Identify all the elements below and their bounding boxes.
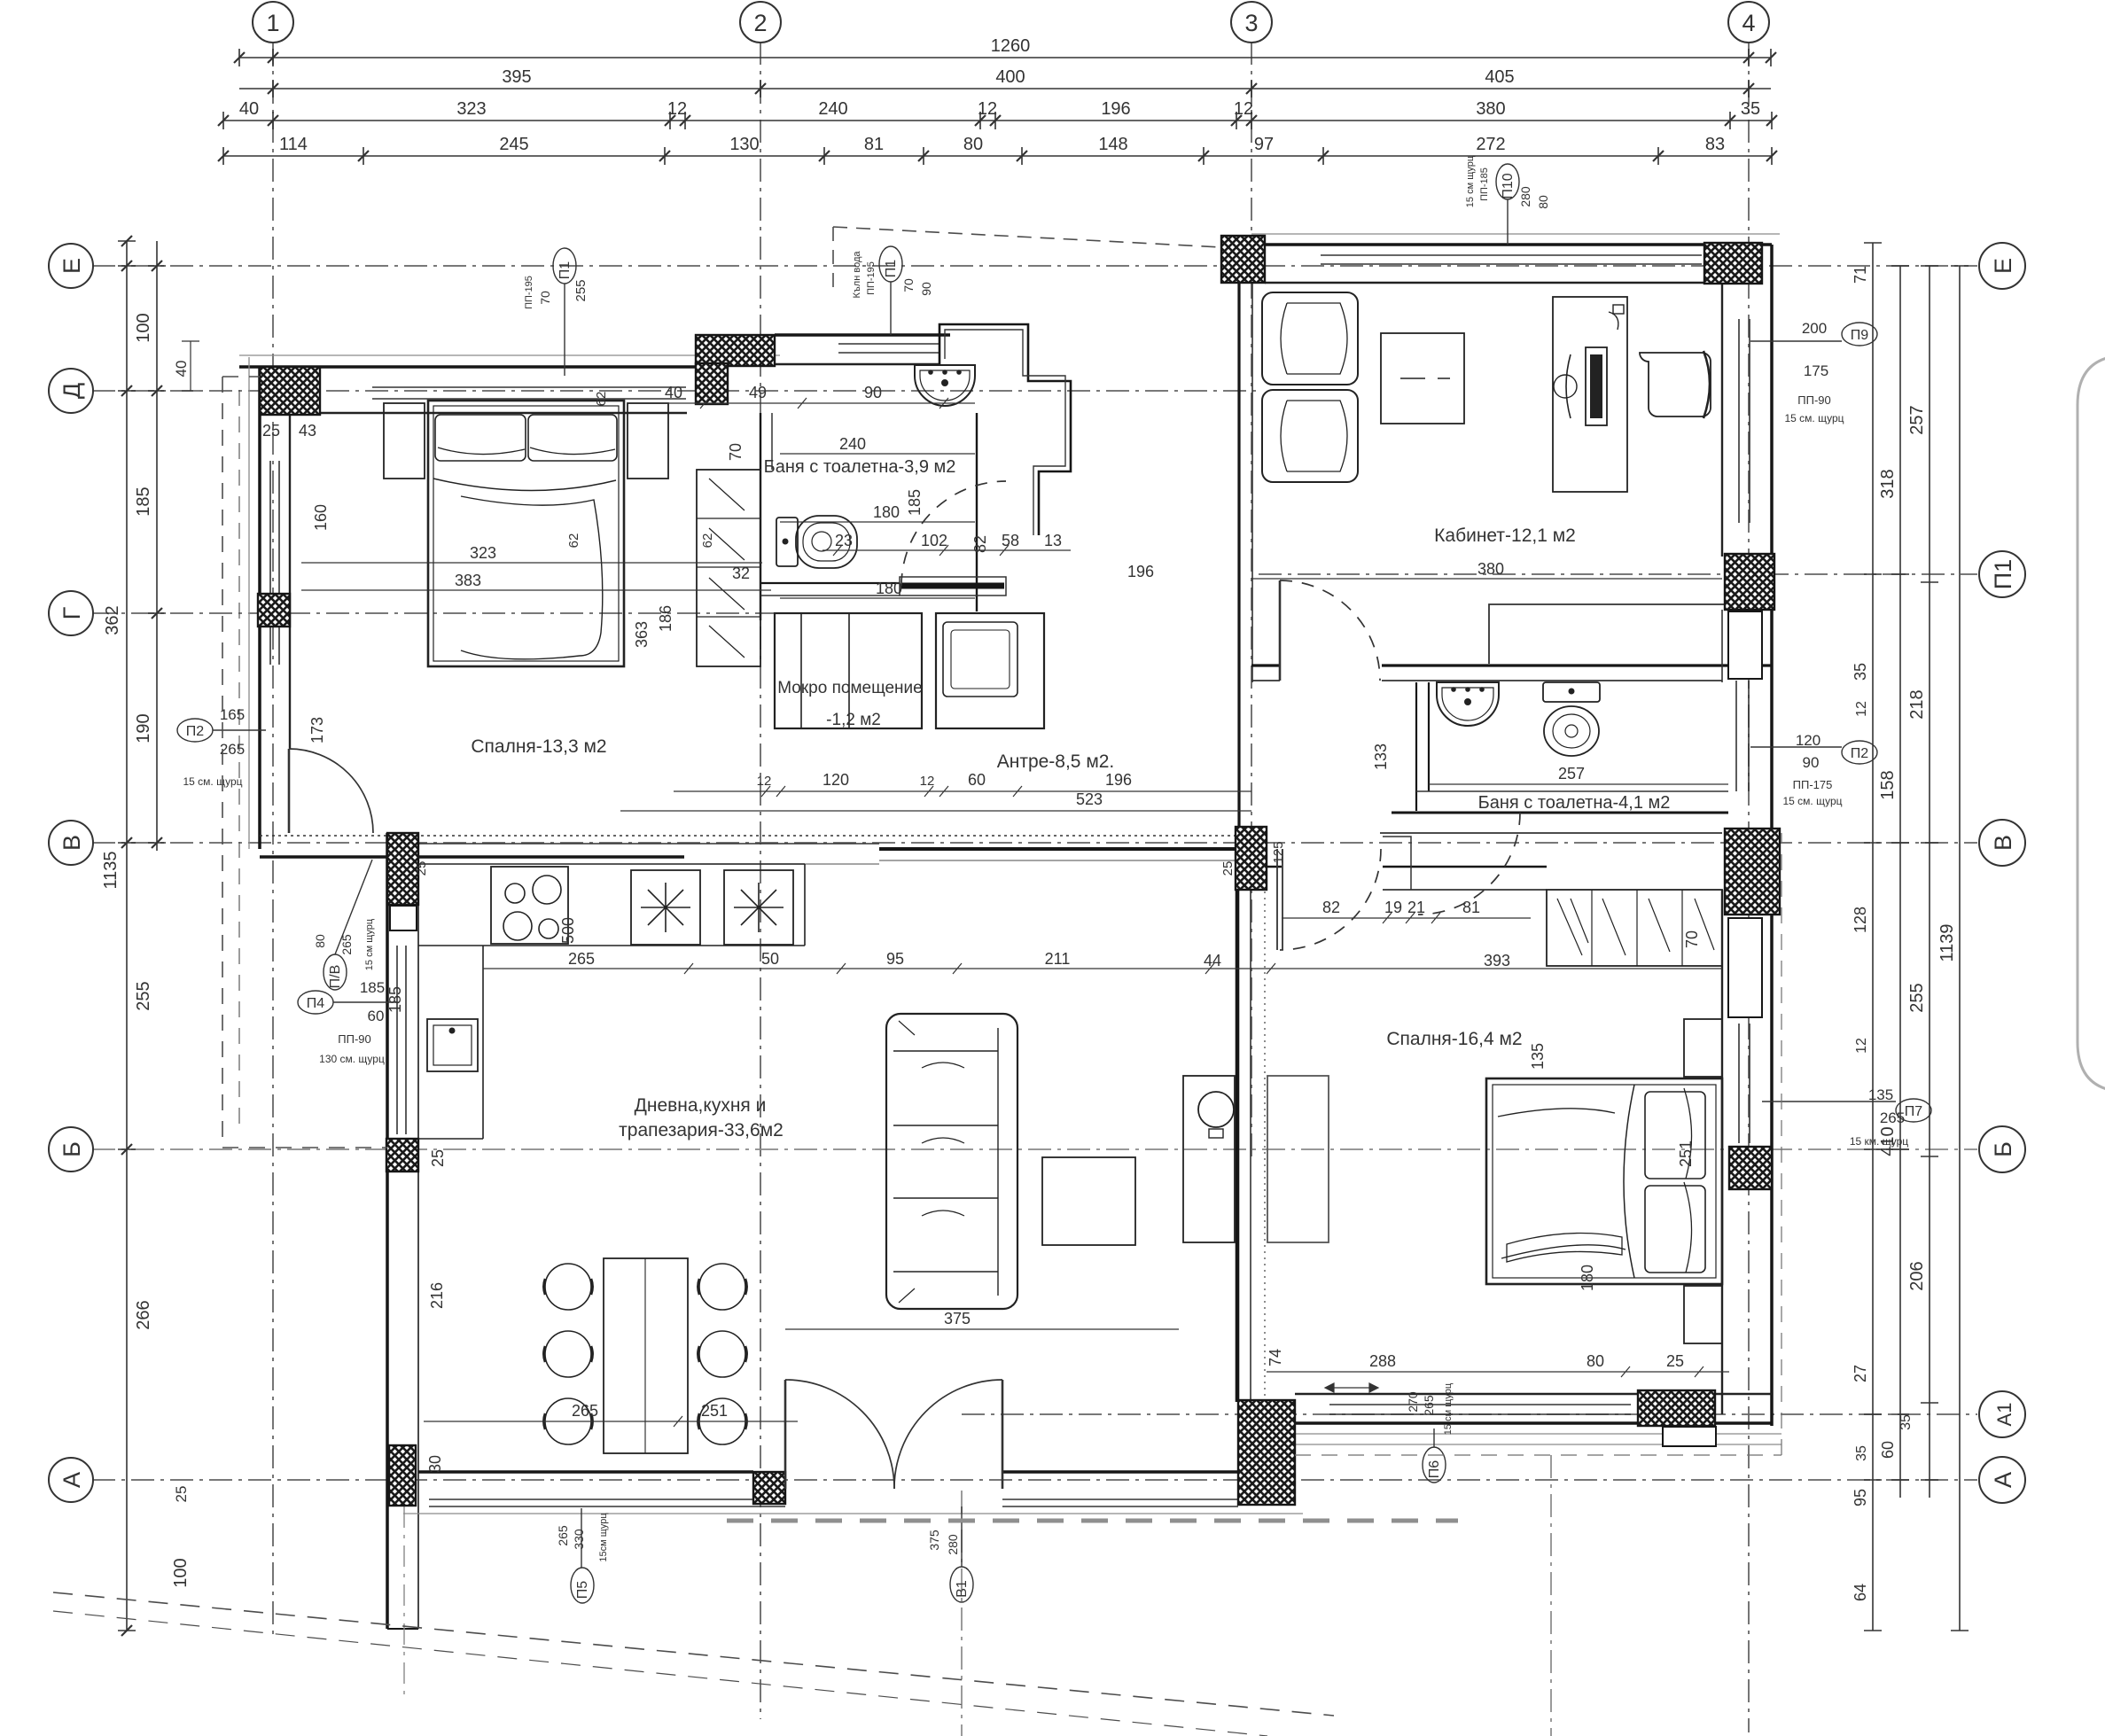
svg-text:70: 70 — [538, 291, 552, 305]
svg-text:83: 83 — [1705, 135, 1725, 154]
svg-text:П5: П5 — [575, 1581, 590, 1600]
svg-text:185: 185 — [386, 986, 404, 1013]
svg-text:60: 60 — [368, 1008, 385, 1024]
svg-text:280: 280 — [1518, 186, 1532, 207]
svg-text:62: 62 — [700, 533, 715, 549]
svg-text:62: 62 — [566, 533, 581, 549]
svg-text:12: 12 — [667, 99, 687, 119]
svg-text:400: 400 — [995, 67, 1025, 87]
svg-text:266: 266 — [134, 1300, 153, 1329]
svg-text:П1: П1 — [1990, 559, 2016, 589]
svg-text:323: 323 — [470, 544, 496, 562]
svg-text:35: 35 — [1741, 99, 1760, 119]
svg-text:ПП-195: ПП-195 — [866, 261, 877, 295]
svg-text:15 см щурц: 15 см щурц — [364, 918, 375, 970]
svg-text:40: 40 — [665, 384, 682, 401]
svg-text:Г: Г — [58, 606, 85, 619]
svg-text:173: 173 — [308, 717, 326, 743]
svg-text:82: 82 — [1322, 899, 1340, 916]
svg-text:80: 80 — [313, 934, 327, 948]
svg-text:70: 70 — [727, 443, 745, 461]
svg-text:80: 80 — [1536, 195, 1550, 209]
svg-text:148: 148 — [1098, 135, 1127, 154]
svg-text:265: 265 — [339, 934, 354, 955]
svg-text:196: 196 — [1105, 771, 1132, 789]
svg-text:90: 90 — [864, 384, 882, 401]
svg-text:В1: В1 — [955, 1580, 970, 1598]
svg-text:70: 70 — [901, 278, 916, 292]
svg-text:114: 114 — [279, 135, 308, 154]
svg-text:15 см щурц: 15 см щурц — [1465, 155, 1476, 207]
svg-text:80: 80 — [1587, 1352, 1604, 1370]
svg-text:ПП-195: ПП-195 — [524, 276, 534, 309]
svg-text:35: 35 — [1854, 1445, 1869, 1461]
svg-text:ПП-185: ПП-185 — [1479, 167, 1490, 201]
svg-text:12: 12 — [1854, 1038, 1869, 1054]
svg-text:190: 190 — [134, 713, 153, 743]
svg-text:160: 160 — [312, 504, 330, 531]
svg-text:Антре-8,5 м2.: Антре-8,5 м2. — [997, 751, 1115, 772]
svg-text:35: 35 — [1898, 1414, 1914, 1430]
svg-text:81: 81 — [1462, 899, 1480, 916]
svg-text:П/В: П/В — [328, 965, 343, 989]
svg-text:15 см. щурц: 15 см. щурц — [183, 775, 242, 788]
svg-text:П1: П1 — [884, 260, 899, 278]
svg-text:49: 49 — [749, 384, 767, 401]
svg-text:В: В — [1990, 835, 2016, 851]
svg-text:ПП-90: ПП-90 — [1797, 393, 1830, 407]
svg-text:25: 25 — [1666, 1352, 1684, 1370]
svg-text:380: 380 — [1477, 560, 1504, 578]
svg-text:1135: 1135 — [101, 851, 121, 889]
svg-text:362: 362 — [103, 605, 122, 634]
svg-text:1139: 1139 — [1937, 923, 1957, 961]
svg-text:95: 95 — [886, 950, 904, 968]
svg-text:196: 196 — [1127, 563, 1154, 580]
svg-text:500: 500 — [559, 917, 577, 944]
svg-text:395: 395 — [502, 67, 531, 87]
svg-text:185: 185 — [906, 489, 924, 516]
svg-text:П7: П7 — [1905, 1104, 1923, 1119]
svg-text:95: 95 — [1852, 1489, 1869, 1506]
svg-text:П6: П6 — [1427, 1460, 1442, 1479]
svg-text:70: 70 — [1683, 930, 1701, 948]
svg-text:393: 393 — [1484, 952, 1510, 969]
svg-text:128: 128 — [1852, 907, 1869, 933]
svg-text:35: 35 — [1852, 663, 1869, 681]
svg-text:200: 200 — [1802, 320, 1827, 337]
svg-text:30: 30 — [426, 1455, 444, 1473]
svg-text:288: 288 — [1369, 1352, 1396, 1370]
svg-text:Мокро помещение: Мокро помещение — [777, 679, 922, 697]
svg-text:62: 62 — [594, 392, 609, 407]
svg-text:40: 40 — [239, 99, 259, 119]
svg-text:185: 185 — [134, 487, 153, 516]
svg-text:Кабинет-12,1 м2: Кабинет-12,1 м2 — [1434, 525, 1576, 546]
svg-text:383: 383 — [455, 572, 481, 589]
svg-text:Дневна,кухня и: Дневна,кухня и — [635, 1095, 767, 1116]
svg-text:Баня с тоалетна-4,1 м2: Баня с тоалетна-4,1 м2 — [1478, 793, 1671, 813]
svg-text:40: 40 — [173, 361, 190, 378]
svg-text:25: 25 — [262, 422, 280, 440]
svg-text:330: 330 — [572, 1529, 586, 1550]
svg-text:15 см. щурц: 15 см. щурц — [1782, 795, 1842, 807]
svg-text:82: 82 — [971, 535, 989, 553]
svg-text:32: 32 — [732, 564, 750, 582]
svg-text:П10: П10 — [1501, 173, 1516, 199]
svg-text:В: В — [58, 835, 85, 851]
svg-text:272: 272 — [1476, 135, 1505, 154]
svg-text:265: 265 — [1422, 1395, 1436, 1416]
svg-text:Спалня-16,4 м2: Спалня-16,4 м2 — [1386, 1029, 1522, 1049]
svg-text:405: 405 — [1485, 67, 1514, 87]
svg-text:П1: П1 — [557, 261, 573, 280]
svg-text:60: 60 — [968, 771, 986, 789]
svg-text:74: 74 — [1267, 1349, 1284, 1366]
svg-text:100: 100 — [171, 1558, 191, 1587]
svg-text:323: 323 — [456, 99, 486, 119]
svg-text:257: 257 — [1907, 405, 1927, 434]
svg-text:265: 265 — [572, 1402, 598, 1420]
svg-text:ПП-90: ПП-90 — [338, 1032, 370, 1046]
svg-text:216: 216 — [428, 1282, 446, 1309]
svg-text:12: 12 — [757, 774, 772, 789]
svg-text:12: 12 — [1234, 99, 1253, 119]
svg-text:175: 175 — [1804, 362, 1828, 379]
svg-text:255: 255 — [134, 981, 153, 1010]
svg-text:90: 90 — [919, 282, 933, 296]
svg-text:120: 120 — [1796, 732, 1820, 749]
svg-text:Д: Д — [58, 383, 85, 399]
svg-text:133: 133 — [1372, 743, 1390, 770]
svg-text:245: 245 — [499, 135, 528, 154]
svg-text:257: 257 — [1558, 765, 1585, 782]
svg-text:15 км. щурц: 15 км. щурц — [1850, 1135, 1908, 1148]
svg-text:265: 265 — [556, 1525, 570, 1546]
svg-text:71: 71 — [1852, 266, 1869, 284]
svg-text:120: 120 — [823, 771, 849, 789]
svg-text:206: 206 — [1907, 1261, 1927, 1290]
svg-text:25: 25 — [429, 1149, 447, 1167]
svg-text:4: 4 — [1742, 10, 1755, 36]
svg-text:Е: Е — [1990, 258, 2016, 274]
svg-text:2: 2 — [753, 10, 767, 36]
svg-text:12: 12 — [920, 774, 935, 789]
svg-text:158: 158 — [1878, 770, 1898, 799]
svg-text:265: 265 — [1880, 1109, 1905, 1126]
svg-text:375: 375 — [944, 1310, 971, 1327]
svg-text:25: 25 — [414, 861, 429, 876]
svg-text:375: 375 — [927, 1530, 941, 1551]
svg-text:135: 135 — [1868, 1086, 1893, 1103]
svg-text:251: 251 — [701, 1402, 728, 1420]
svg-text:1260: 1260 — [991, 36, 1031, 56]
svg-text:64: 64 — [1852, 1584, 1869, 1601]
svg-text:280: 280 — [946, 1534, 960, 1555]
svg-text:25: 25 — [1220, 861, 1236, 876]
svg-text:180: 180 — [873, 503, 900, 521]
svg-text:186: 186 — [657, 605, 674, 632]
svg-text:270: 270 — [1406, 1391, 1420, 1413]
svg-text:ПП-175: ПП-175 — [1793, 778, 1833, 791]
svg-text:Б: Б — [1990, 1141, 2016, 1157]
svg-text:19: 19 — [1384, 899, 1402, 916]
svg-text:240: 240 — [839, 435, 866, 453]
svg-text:3: 3 — [1244, 10, 1258, 36]
svg-text:135: 135 — [1529, 1043, 1547, 1070]
svg-text:255: 255 — [573, 279, 589, 301]
svg-text:44: 44 — [1204, 952, 1221, 969]
svg-text:218: 218 — [1907, 689, 1927, 719]
svg-text:185: 185 — [360, 979, 385, 996]
svg-text:80: 80 — [963, 135, 983, 154]
svg-text:196: 196 — [1101, 99, 1130, 119]
svg-text:15 см щурц: 15 см щурц — [1443, 1382, 1454, 1435]
svg-text:265: 265 — [568, 950, 595, 968]
svg-text:363: 363 — [633, 621, 651, 648]
svg-text:43: 43 — [299, 422, 316, 440]
svg-text:-1,2 м2: -1,2 м2 — [826, 711, 881, 729]
svg-text:А: А — [58, 1472, 85, 1488]
svg-text:130: 130 — [729, 135, 759, 154]
svg-text:81: 81 — [864, 135, 884, 154]
svg-text:15см щурц: 15см щурц — [598, 1513, 609, 1562]
svg-text:Б: Б — [58, 1141, 85, 1157]
svg-text:1: 1 — [266, 10, 279, 36]
svg-text:240: 240 — [818, 99, 847, 119]
svg-text:25: 25 — [173, 1486, 190, 1503]
svg-text:П9: П9 — [1851, 328, 1869, 343]
svg-text:Кълн вода: Кълн вода — [852, 251, 862, 299]
svg-text:318: 318 — [1878, 469, 1898, 498]
svg-text:523: 523 — [1076, 790, 1103, 808]
svg-text:165: 165 — [220, 706, 245, 723]
svg-text:97: 97 — [1254, 135, 1274, 154]
svg-text:П2: П2 — [186, 724, 205, 739]
svg-text:100: 100 — [134, 313, 153, 342]
svg-text:Е: Е — [58, 258, 85, 274]
svg-text:12: 12 — [1854, 701, 1869, 717]
svg-text:180: 180 — [876, 580, 902, 597]
svg-text:А: А — [1990, 1472, 2016, 1488]
svg-text:Спалня-13,3 м2: Спалня-13,3 м2 — [471, 736, 606, 757]
svg-text:90: 90 — [1803, 754, 1820, 771]
svg-text:50: 50 — [761, 950, 779, 968]
svg-text:А1: А1 — [1993, 1403, 2015, 1427]
svg-text:трапезария-33,6м2: трапезария-33,6м2 — [619, 1120, 784, 1140]
svg-text:255: 255 — [1907, 983, 1927, 1012]
svg-text:15 см. щурц: 15 см. щурц — [1784, 412, 1844, 424]
svg-text:102: 102 — [921, 532, 947, 549]
svg-text:211: 211 — [1045, 950, 1071, 968]
svg-text:Баня с тоалетна-3,9 м2: Баня с тоалетна-3,9 м2 — [764, 457, 956, 477]
svg-text:13: 13 — [1044, 532, 1062, 549]
svg-text:380: 380 — [1476, 99, 1505, 119]
svg-text:П4: П4 — [307, 996, 325, 1011]
svg-text:58: 58 — [1002, 532, 1019, 549]
svg-text:23: 23 — [835, 532, 853, 549]
svg-text:П2: П2 — [1851, 746, 1869, 761]
svg-text:251: 251 — [1677, 1140, 1695, 1167]
svg-text:21: 21 — [1407, 899, 1425, 916]
svg-text:265: 265 — [220, 741, 245, 758]
svg-text:180: 180 — [1579, 1265, 1596, 1291]
svg-text:60: 60 — [1879, 1441, 1897, 1459]
svg-text:130 см. щурц: 130 см. щурц — [319, 1053, 385, 1065]
svg-text:125: 125 — [1271, 841, 1286, 863]
svg-text:12: 12 — [978, 99, 997, 119]
svg-text:27: 27 — [1852, 1365, 1869, 1382]
